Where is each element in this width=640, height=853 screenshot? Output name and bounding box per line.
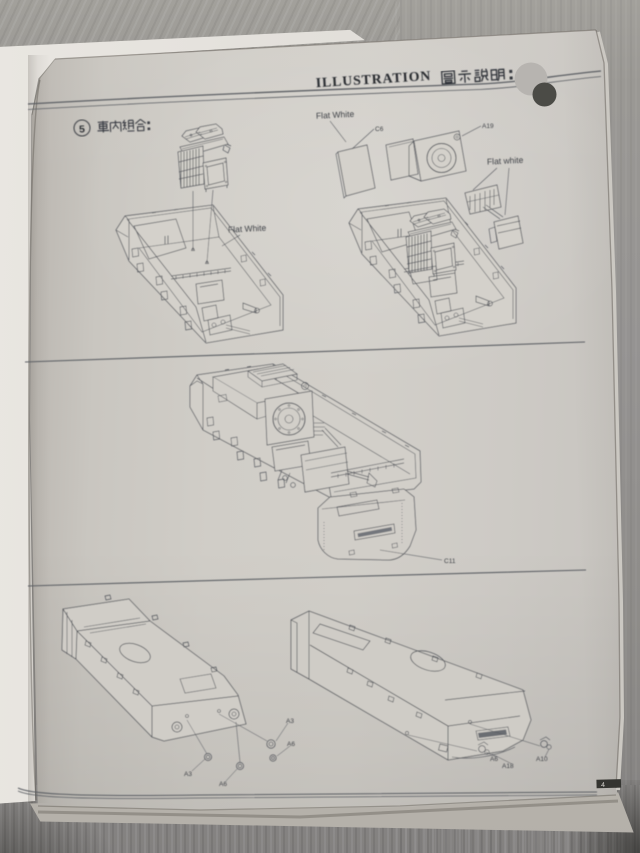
svg-text:C6: C6 — [375, 126, 384, 133]
svg-text:Flat White: Flat White — [228, 223, 267, 235]
svg-text:A6: A6 — [287, 741, 295, 748]
svg-text:Flat White: Flat White — [316, 109, 355, 121]
svg-text:A18: A18 — [502, 763, 514, 770]
svg-text:5: 5 — [79, 123, 86, 135]
svg-text:4: 4 — [601, 782, 605, 789]
svg-text:Flat white: Flat white — [487, 155, 524, 167]
svg-text:C11: C11 — [444, 558, 456, 565]
svg-text:A10: A10 — [536, 756, 548, 763]
svg-text:A3: A3 — [184, 771, 192, 778]
svg-text:A6: A6 — [219, 781, 227, 788]
svg-text:A19: A19 — [482, 123, 494, 130]
svg-text:A6: A6 — [490, 756, 498, 763]
